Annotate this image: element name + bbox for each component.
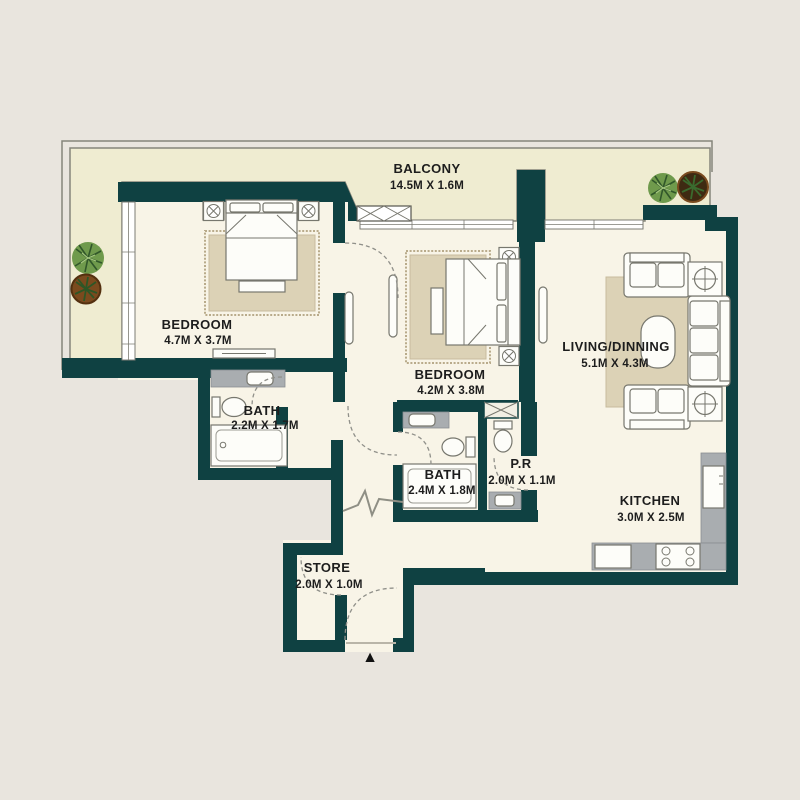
sink bbox=[247, 372, 273, 385]
room-name: BEDROOM bbox=[415, 367, 486, 382]
wardrobe-door-leaf bbox=[389, 275, 397, 337]
stove bbox=[656, 544, 700, 569]
room-dims: 2.0M X 1.1M bbox=[488, 475, 555, 487]
room-dims: 14.5M X 1.6M bbox=[390, 180, 464, 192]
room-name: P.R bbox=[510, 456, 531, 471]
toilet-icon bbox=[212, 397, 246, 417]
window-bedroom1-left bbox=[122, 202, 135, 360]
floor-plan-page: BALCONY 14.5M X 1.6M BEDROOM 4.7M X 3.7M… bbox=[0, 0, 800, 800]
room-name: LIVING/DINNING bbox=[562, 339, 669, 354]
toilet-icon bbox=[442, 437, 475, 457]
window-living-top bbox=[545, 220, 643, 229]
sofa bbox=[688, 296, 730, 386]
room-dims: 5.1M X 4.3M bbox=[581, 358, 648, 370]
oven bbox=[703, 466, 724, 508]
room-dims: 4.7M X 3.7M bbox=[164, 335, 231, 347]
side-table bbox=[688, 262, 722, 296]
room-dims: 2.2M X 1.7M bbox=[231, 420, 298, 432]
loveseat bbox=[624, 253, 690, 297]
duct-shaft-box bbox=[484, 402, 518, 418]
door-leaf bbox=[539, 287, 547, 343]
room-dims: 2.0M X 1.0M bbox=[295, 579, 362, 591]
room-name: BATH bbox=[425, 467, 462, 482]
entrance-arrow-icon: ▲ bbox=[362, 649, 378, 666]
lamp-icon bbox=[299, 202, 319, 221]
room-name: STORE bbox=[304, 560, 351, 575]
balcony-planter-box bbox=[357, 206, 411, 221]
room-name: KITCHEN bbox=[620, 493, 681, 508]
sink bbox=[495, 495, 514, 506]
floor-plan-canvas: BALCONY 14.5M X 1.6M BEDROOM 4.7M X 3.7M… bbox=[0, 0, 800, 800]
plant-icon bbox=[72, 242, 104, 274]
loveseat bbox=[624, 385, 690, 429]
potted-plant-icon bbox=[678, 172, 708, 202]
lamp-icon bbox=[499, 347, 519, 366]
room-name: BALCONY bbox=[393, 161, 460, 176]
fridge bbox=[595, 545, 631, 568]
toilet-icon bbox=[494, 421, 512, 452]
room-dims: 4.2M X 3.8M bbox=[417, 385, 484, 397]
bed-bench bbox=[239, 281, 285, 292]
plant-icon bbox=[648, 173, 678, 203]
potted-plant-icon bbox=[72, 275, 101, 304]
bedroom1-door-leaf bbox=[345, 292, 353, 344]
side-table bbox=[688, 387, 722, 421]
room-name: BEDROOM bbox=[162, 317, 233, 332]
lamp-icon bbox=[204, 202, 224, 221]
room-dims: 3.0M X 2.5M bbox=[617, 512, 684, 524]
bed bbox=[226, 200, 297, 280]
room-dims: 2.4M X 1.8M bbox=[408, 485, 475, 497]
dresser bbox=[213, 349, 275, 358]
room-name: BATH bbox=[244, 403, 281, 418]
bed bbox=[446, 259, 520, 345]
bed-bench bbox=[431, 288, 443, 334]
sink bbox=[409, 414, 435, 426]
